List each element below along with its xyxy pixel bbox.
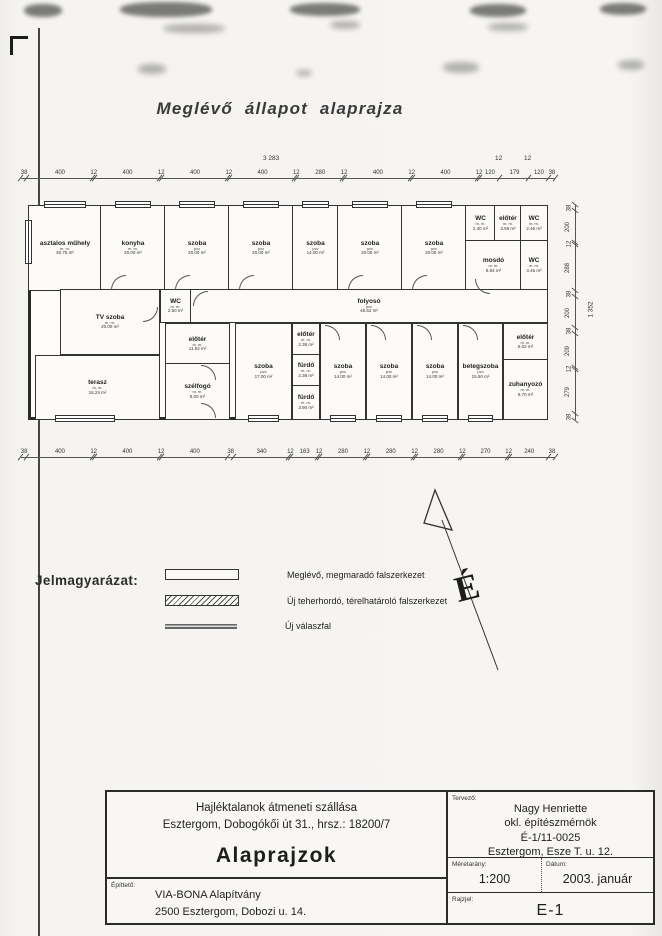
room-area: 40.75 m² [56, 251, 74, 256]
north-arrow-head [424, 490, 452, 530]
scan-noise [618, 60, 644, 70]
dimension-segment: 200 [563, 211, 576, 243]
overall-width-dimension: 3 283 [263, 155, 279, 162]
room-area: 8.94 m² [486, 269, 501, 274]
client-cell: Építtető: VIA-BONA Alapítvány 2500 Eszte… [107, 877, 446, 923]
dimension-segment: 400 [162, 166, 228, 179]
load-wall-swatch [165, 595, 239, 606]
date-value: 2003. január [542, 872, 653, 886]
window-symbol [330, 415, 356, 422]
room-area: 2.40 m² [473, 227, 488, 232]
legend-item-existing: Meglévő, megmaradó falszerkezet [165, 569, 425, 580]
room-wc: WC m. m. 3.46 m² [520, 240, 548, 291]
bottom-dimension-chain: 3840012400124003834012163122801228012280… [21, 445, 555, 457]
dimension-segment: 163 [291, 445, 318, 458]
drawing-title: Alaprajzok [107, 844, 446, 868]
room-area: 17.00 m² [255, 375, 273, 380]
room-area: 3.46 m² [526, 269, 541, 274]
scale-label: Méretarány: [452, 861, 487, 868]
scan-noise [24, 4, 62, 17]
room-szoba: szoba pvc 14.00 m² [292, 205, 339, 291]
partition-wall-swatch [165, 624, 237, 629]
dimension-segment: 120 [480, 166, 500, 179]
scale-cell: Méretarány: 1:200 [448, 858, 542, 892]
room-előtér: előtér m. m. 11.52 m² [165, 323, 230, 365]
room-area: 6.70 m² [518, 393, 533, 398]
window-symbol [25, 220, 32, 264]
window-symbol [352, 201, 389, 208]
window-symbol [115, 201, 152, 208]
room-area: 15.50 m² [472, 375, 490, 380]
dimension-segment: 280 [416, 445, 462, 458]
dimension-segment: 340 [234, 445, 290, 458]
room-area: 14.00 m² [334, 375, 352, 380]
dimension-segment: 400 [230, 166, 296, 179]
client-line-1: VIA-BONA Alapítvány [155, 887, 306, 904]
room-szoba: szoba pvc 20.00 m² [401, 205, 467, 291]
legend-item-label: Meglévő, megmaradó falszerkezet [287, 570, 425, 580]
dimension-segment: 400 [413, 166, 479, 179]
room-előtér: előtér m. m. 3.58 m² [494, 205, 522, 242]
scan-noise [138, 64, 166, 74]
window-symbol [416, 201, 453, 208]
room-area: 5.02 m² [518, 345, 533, 350]
room-szoba: szoba pvc 17.00 m² [235, 323, 292, 420]
project-line-1: Hajléktalanok átmeneti szállása [107, 800, 446, 817]
legend-item-label: Új válaszfal [285, 621, 331, 631]
dimension-segment: 400 [27, 166, 93, 179]
top-extra-dimension: 12 [495, 155, 502, 162]
client-line-2: 2500 Esztergom, Dobozi u. 14. [155, 904, 306, 921]
designer-label: Tervező: [452, 795, 477, 803]
dimension-segment: 280 [297, 166, 343, 179]
room-area: 2.50 m² [168, 309, 183, 314]
room-area: 3.90 m² [298, 406, 313, 411]
room-area: 20.00 m² [361, 251, 379, 256]
window-symbol [179, 201, 216, 208]
room-szoba: szoba pvc 20.00 m² [164, 205, 230, 291]
room-area: 20.00 m² [124, 251, 142, 256]
room-area: 8.00 m² [190, 395, 205, 400]
page-title: Meglévő állapot alaprajza [90, 99, 470, 119]
title-block: Hajléktalanok átmeneti szállása Esztergo… [105, 790, 655, 925]
room-szoba: szoba pvc 20.00 m² [337, 205, 403, 291]
room-area: 20.00 m² [252, 251, 270, 256]
date-label: Dátum: [546, 861, 567, 868]
room-konyha: konyha m. m. 20.00 m² [100, 205, 166, 291]
dimension-segment: 400 [27, 445, 92, 458]
window-symbol [243, 201, 280, 208]
window-symbol [422, 415, 448, 422]
dimension-segment: 288 [563, 245, 576, 291]
sheet-cell: Rajzjel: E-1 [448, 893, 653, 923]
window-symbol [302, 201, 328, 208]
room-mosdó: mosdó m. m. 8.94 m² [465, 240, 522, 291]
room-wc: WC m. m. 2.46 m² [520, 205, 548, 242]
scan-noise [600, 3, 646, 15]
room-fürdő: fürdő m. m. 2.38 m² [292, 354, 320, 387]
title-block-right: Tervező: Nagy Henriette okl. építészmérn… [448, 792, 653, 923]
designer-line-1: Nagy Henriette [448, 802, 653, 816]
room-area: 2.38 m² [298, 343, 313, 348]
dimension-segment: 179 [500, 166, 529, 179]
project-line-2: Esztergom, Dobogókői út 31., hrsz.: 1820… [107, 817, 446, 834]
dimension-segment: 279 [563, 370, 576, 414]
scale-value: 1:200 [448, 872, 541, 886]
dimension-segment: 240 [510, 445, 549, 458]
top-extra-dimension: 12 [524, 155, 531, 162]
room-area: 45.62 m² [360, 309, 378, 314]
room-terasz: terasz m. m. 16.24 m² [35, 355, 160, 420]
room-area: 14.00 m² [426, 375, 444, 380]
legend: Jelmagyarázat: Meglévő, megmaradó falsze… [35, 565, 465, 640]
room-szoba: szoba pvc 20.00 m² [228, 205, 294, 291]
room-tv-szoba: TV szoba m. m. 20.00 m² [60, 289, 160, 355]
room-fürdő: fürdő m. m. 3.90 m² [292, 385, 320, 420]
window-symbol [248, 415, 280, 422]
room-area: 20.00 m² [425, 251, 443, 256]
room-area: 20.00 m² [101, 325, 119, 330]
dimension-segment: 270 [463, 445, 507, 458]
right-dimension-chain: 382001228838200382091227938 [563, 205, 575, 420]
dimension-segment: 209 [563, 334, 576, 367]
room-area: 14.00 m² [380, 375, 398, 380]
room-wc: WC m. m. 2.50 m² [160, 289, 191, 323]
overall-height-dimension: 1 352 [588, 301, 595, 317]
dimension-segment: 200 [563, 297, 576, 329]
room-wc: WC m. m. 2.40 m² [465, 205, 496, 242]
room-area: 2.38 m² [298, 374, 313, 379]
room-area: 14.00 m² [307, 251, 325, 256]
window-symbol [468, 415, 493, 422]
window-symbol [376, 415, 402, 422]
project-description: Hajléktalanok átmeneti szállása Esztergo… [107, 800, 446, 835]
scan-noise [470, 4, 526, 17]
room-area: 3.58 m² [500, 227, 515, 232]
scan-noise [488, 23, 528, 31]
legend-item-label: Új teherhordó, térelhatároló falszerkeze… [287, 596, 447, 606]
scan-noise [443, 62, 479, 73]
room-szélfogó: szélfogó m. m. 8.00 m² [165, 363, 230, 420]
scan-noise [296, 70, 312, 76]
dimension-segment: 120 [529, 166, 549, 179]
top-dimension-chain: 3840012400124001240012280124001240012120… [21, 166, 555, 178]
scan-corner-mark [10, 36, 28, 55]
dimension-segment: 280 [368, 445, 414, 458]
sheet-value: E-1 [448, 902, 653, 920]
scan-noise [163, 24, 225, 33]
title-block-left: Hajléktalanok átmeneti szállása Esztergo… [107, 792, 448, 923]
designer-line-2: okl. építészmérnök [448, 816, 653, 830]
window-symbol [44, 201, 85, 208]
existing-wall-swatch [165, 569, 239, 580]
legend-heading: Jelmagyarázat: [35, 573, 138, 588]
legend-item-partition: Új válaszfal [165, 621, 331, 631]
dimension-segment: 400 [345, 166, 411, 179]
designer-line-3: É-1/11-0025 [448, 831, 653, 845]
room-zuhanyozó: zuhanyozó m. m. 6.70 m² [503, 359, 548, 420]
client-label: Építtető: [111, 882, 135, 889]
room-előtér: előtér m. m. 5.02 m² [503, 323, 548, 361]
legend-item-load: Új teherhordó, térelhatároló falszerkeze… [165, 595, 447, 606]
scan-noise [120, 2, 212, 17]
dimension-segment: 400 [95, 166, 161, 179]
room-előtér: előtér m. m. 2.38 m² [292, 323, 320, 356]
room-area: 20.00 m² [188, 251, 206, 256]
scan-noise [290, 3, 360, 16]
scan-noise [330, 21, 360, 29]
room-asztalos-műhely: asztalos műhely m. m. 40.75 m² [28, 205, 102, 291]
dimension-segment: 400 [162, 445, 227, 458]
date-cell: Dátum: 2003. január [542, 858, 653, 892]
floor-plan: 3 283 12 12 3840012400124001240012280124… [15, 158, 655, 458]
room-folyosó: folyosó pvc 45.62 m² [190, 289, 548, 323]
room-area: 11.52 m² [189, 347, 206, 352]
room-area: 2.46 m² [526, 227, 541, 232]
scanned-drawing-page: Meglévő állapot alaprajza 3 283 12 12 38… [0, 0, 662, 936]
window-symbol [55, 415, 115, 422]
room-area: 16.24 m² [89, 391, 107, 396]
dimension-segment: 280 [320, 445, 366, 458]
designer-cell: Tervező: Nagy Henriette okl. építészmérn… [448, 792, 653, 858]
dimension-segment: 400 [95, 445, 160, 458]
